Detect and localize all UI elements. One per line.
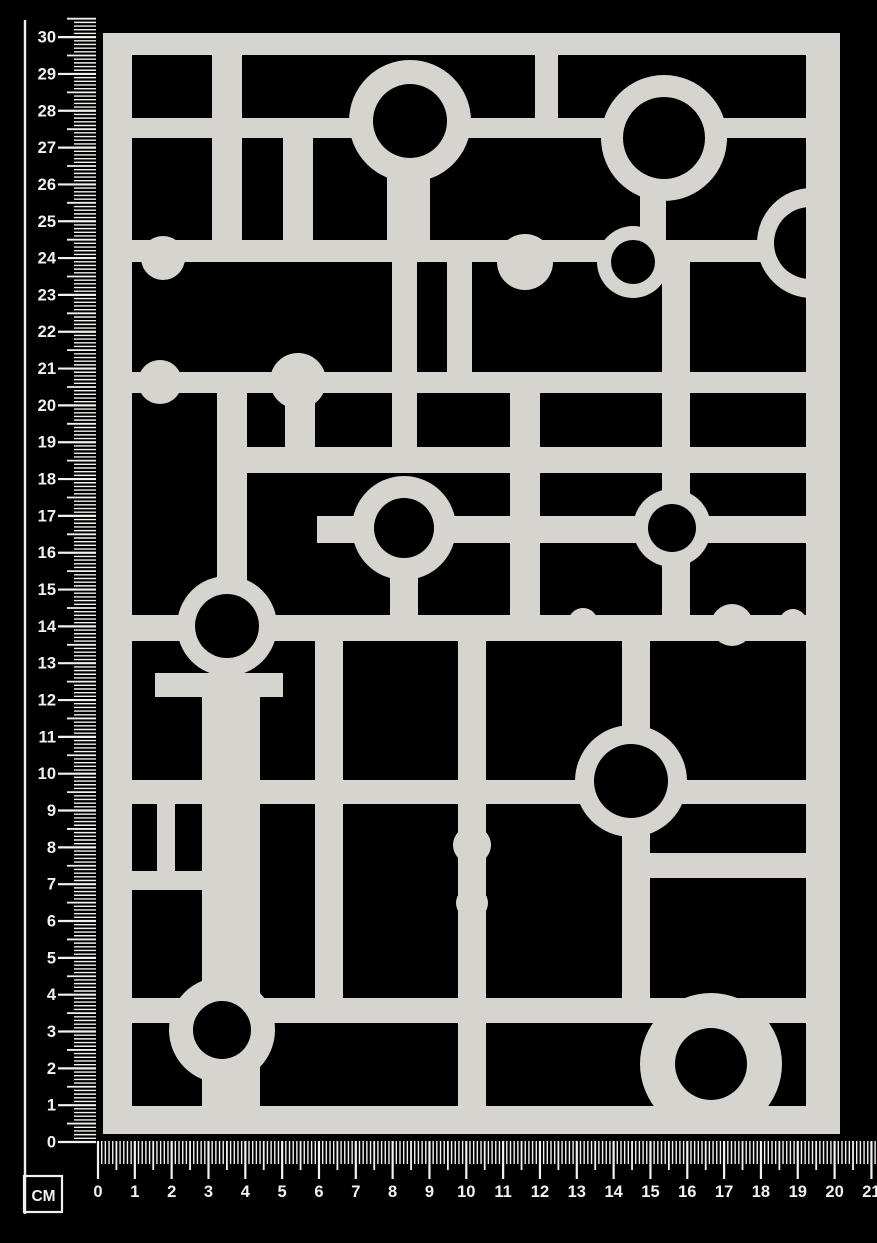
- ruler-number: 1: [130, 1183, 139, 1201]
- ruler-number: 10: [457, 1183, 475, 1201]
- ruler-number: 3: [204, 1183, 213, 1201]
- ruler-number: 13: [568, 1183, 586, 1201]
- ruler-number: 6: [314, 1183, 323, 1201]
- ruler-number: 5: [278, 1183, 287, 1201]
- board-frame-right-overlay: [806, 33, 840, 1134]
- horizontal-ruler: 0123456789101112131415161718192021: [93, 1141, 877, 1201]
- ruler-number: 15: [38, 581, 56, 599]
- ruler-number: 1: [47, 1097, 56, 1115]
- ruler-number: 28: [38, 102, 56, 120]
- ruler-number: 8: [47, 839, 56, 857]
- ruler-number: 16: [38, 544, 56, 562]
- ruler-number: 19: [789, 1183, 807, 1201]
- ruler-number: 11: [494, 1183, 511, 1201]
- ruler-number: 21: [38, 360, 56, 378]
- vertical-ruler-numbers: 0123456789101112131415161718192021222324…: [38, 29, 57, 1152]
- ruler-number: 22: [38, 323, 56, 341]
- ruler-number: 6: [47, 913, 56, 931]
- ruler-number: 26: [38, 176, 56, 194]
- ruler-number: 20: [38, 397, 56, 415]
- ruler-number: 14: [604, 1183, 623, 1201]
- ruler-number: 12: [531, 1183, 549, 1201]
- ruler-number: 20: [825, 1183, 843, 1201]
- ruler-number: 12: [38, 692, 56, 710]
- ruler-number: 30: [38, 29, 56, 47]
- horizontal-ruler-numbers: 0123456789101112131415161718192021: [93, 1183, 877, 1201]
- ruler-number: 2: [167, 1183, 176, 1201]
- ruler-number: 17: [715, 1183, 733, 1201]
- ruler-number: 24: [38, 250, 57, 268]
- vertical-ruler: 0123456789101112131415161718192021222324…: [25, 19, 96, 1214]
- product-photo-stage: 0123456789101112131415161718192021222324…: [0, 0, 877, 1243]
- ruler-number: 29: [38, 65, 56, 83]
- ruler-number: 27: [38, 139, 56, 157]
- ruler-number: 5: [47, 949, 56, 967]
- ruler-number: 23: [38, 286, 56, 304]
- ruler-number: 3: [47, 1023, 56, 1041]
- horizontal-ruler-ticks: [98, 1141, 875, 1179]
- ruler-number: 18: [752, 1183, 770, 1201]
- ruler-number: 15: [641, 1183, 659, 1201]
- ruler-number: 9: [425, 1183, 434, 1201]
- ruler-number: 11: [39, 728, 56, 746]
- ruler-number: 13: [38, 655, 56, 673]
- ruler-number: 18: [38, 471, 56, 489]
- ruler-number: 16: [678, 1183, 696, 1201]
- unit-box: CM: [24, 1176, 62, 1212]
- ruler-number: 25: [38, 213, 56, 231]
- scene: 0123456789101112131415161718192021222324…: [0, 0, 877, 1243]
- unit-label: CM: [31, 1188, 55, 1205]
- ruler-number: 0: [93, 1183, 102, 1201]
- ruler-number: 19: [38, 434, 56, 452]
- ruler-number: 10: [38, 765, 56, 783]
- vertical-ruler-ticks: [58, 19, 96, 1142]
- ruler-number: 7: [47, 876, 56, 894]
- ruler-number: 9: [47, 802, 56, 820]
- ruler-number: 14: [38, 618, 57, 636]
- ruler-number: 7: [351, 1183, 360, 1201]
- chipboard-pattern: [103, 33, 867, 1135]
- ruler-number: 21: [862, 1183, 877, 1201]
- ruler-number: 2: [47, 1060, 56, 1078]
- ruler-number: 4: [47, 986, 57, 1004]
- ruler-number: 4: [241, 1183, 251, 1201]
- ruler-number: 17: [38, 507, 56, 525]
- ruler-number: 8: [388, 1183, 397, 1201]
- ruler-number: 0: [47, 1134, 56, 1152]
